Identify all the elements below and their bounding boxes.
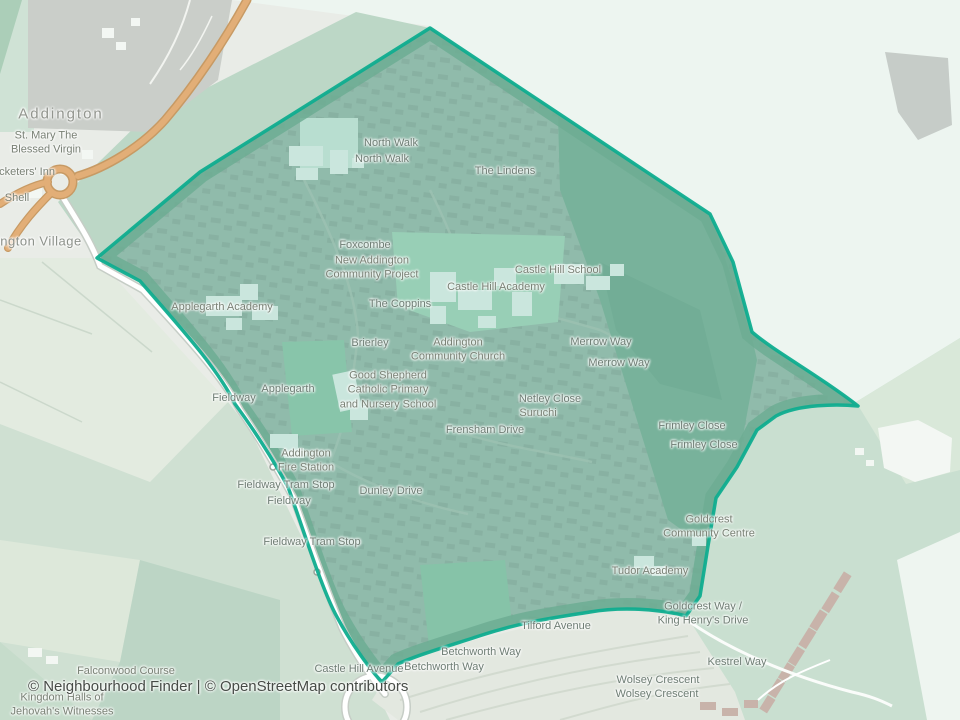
- map-graphics: [0, 0, 960, 720]
- attribution[interactable]: © Neighbourhood Finder | © OpenStreetMap…: [28, 678, 408, 695]
- map-viewport[interactable]: AddingtonSt. Mary The Blessed VirginCric…: [0, 0, 960, 720]
